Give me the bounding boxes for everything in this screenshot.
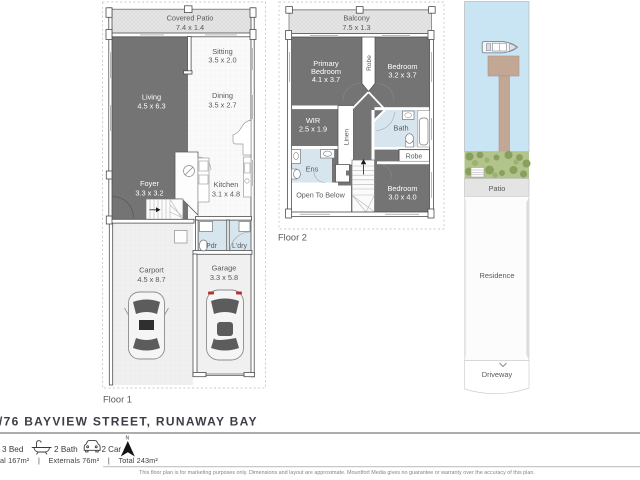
svg-text:Driveway: Driveway [482,370,513,379]
svg-text:Garage: Garage [212,264,237,273]
svg-text:7.5 x 1.3: 7.5 x 1.3 [342,23,370,32]
svg-text:/76 BAYVIEW STREET, RUNAWAY BA: /76 BAYVIEW STREET, RUNAWAY BAY [0,415,258,429]
svg-text:Patio: Patio [489,184,506,193]
svg-text:N: N [126,436,130,442]
svg-text:7.4 x 1.4: 7.4 x 1.4 [176,23,204,32]
svg-text:Open To Below: Open To Below [296,191,345,200]
svg-text:Kitchen: Kitchen [214,180,239,189]
svg-text:3.5 x 2.0: 3.5 x 2.0 [208,56,236,65]
svg-text:2.5 x 1.9: 2.5 x 1.9 [299,125,327,134]
svg-text:3 Bed: 3 Bed [2,445,24,454]
svg-text:Pdr: Pdr [206,243,218,250]
svg-text:3.3 x 3.2: 3.3 x 3.2 [135,188,163,197]
svg-text:3.5 x 2.7: 3.5 x 2.7 [208,100,236,109]
svg-text:Residence: Residence [480,271,515,280]
svg-text:3.2 x 3.7: 3.2 x 3.7 [388,71,416,80]
svg-text:3.1 x 4.8: 3.1 x 4.8 [212,189,240,198]
svg-text:Floor 2: Floor 2 [278,233,307,243]
svg-text:Floor 1: Floor 1 [103,395,132,405]
svg-text:2 Car: 2 Car [102,445,122,454]
svg-text:Linen: Linen [343,129,350,145]
svg-text:Foyer: Foyer [140,179,159,188]
svg-text:2 Bath: 2 Bath [54,445,78,454]
svg-text:This floor plan is for marketi: This floor plan is for marketing purpose… [139,470,535,476]
svg-text:3.0 x 4.0: 3.0 x 4.0 [388,193,416,202]
svg-text:Balcony: Balcony [343,14,370,23]
svg-text:al 167m² | Externals 7: al 167m² | Externals 76m² | Total 243m² [0,456,158,465]
svg-text:Covered Patio: Covered Patio [167,14,214,23]
svg-text:3.3 x 5.8: 3.3 x 5.8 [210,273,238,282]
svg-text:Ens: Ens [306,165,319,174]
svg-text:4.5 x 8.7: 4.5 x 8.7 [137,275,165,284]
svg-text:Robe: Robe [406,153,423,160]
svg-text:Living: Living [142,93,161,102]
svg-text:4.5 x 6.3: 4.5 x 6.3 [137,101,165,110]
svg-text:Robe: Robe [366,55,373,71]
svg-text:L'dry: L'dry [232,243,247,250]
svg-text:Bath: Bath [393,124,408,133]
svg-text:Carport: Carport [139,266,164,275]
svg-text:4.1 x 3.7: 4.1 x 3.7 [312,75,340,84]
svg-text:Dining: Dining [212,91,233,100]
